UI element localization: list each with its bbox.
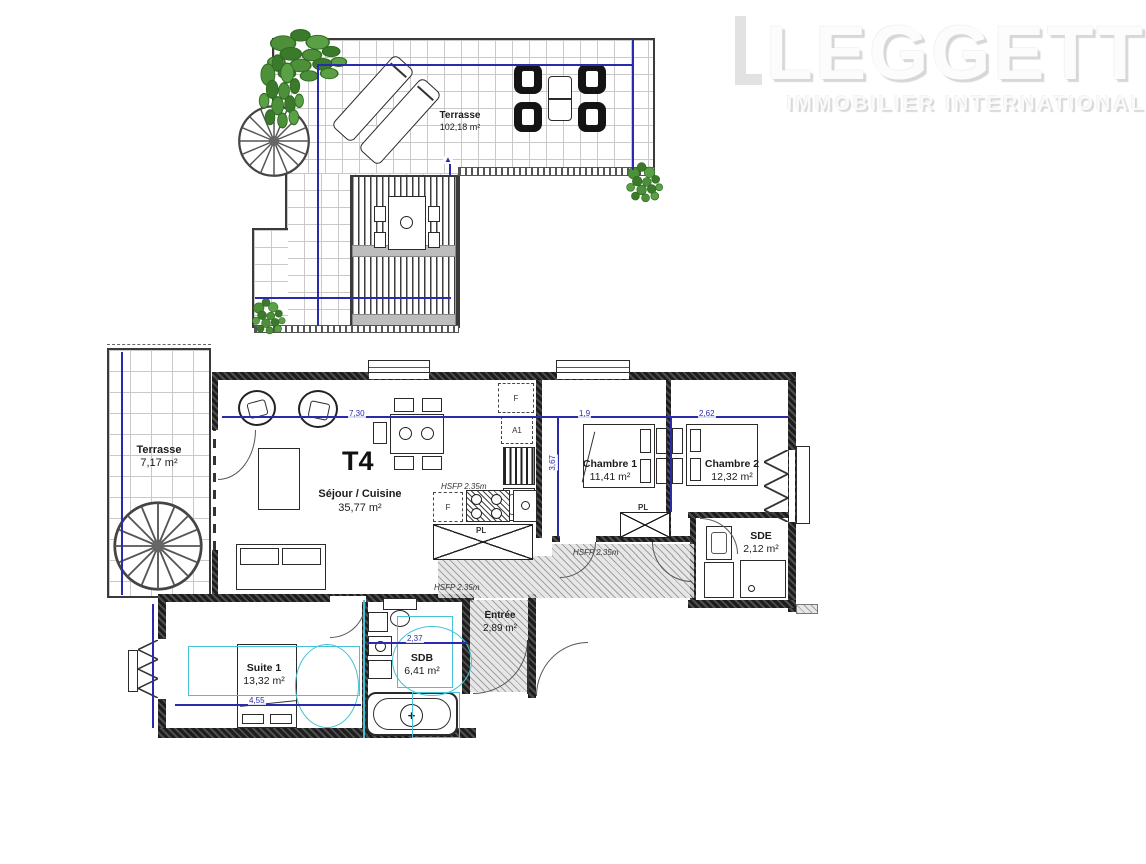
burner: [471, 508, 482, 519]
burner: [491, 494, 502, 505]
dining-chair: [373, 422, 387, 444]
armchair-seat: [307, 400, 330, 421]
dimension-line: [317, 64, 319, 326]
dimension-text: 2,62: [698, 410, 716, 418]
fridge-label: F: [514, 394, 519, 403]
window-gap: [789, 450, 795, 522]
cyan-overlay-line: [363, 600, 365, 738]
roof-terrace-area: 102,18 m²: [425, 122, 495, 132]
cyan-overlay-circle: [392, 626, 472, 696]
plate: [399, 427, 412, 440]
window: [368, 360, 430, 373]
wall-stub: [796, 604, 818, 614]
roof-chair: [514, 64, 542, 94]
deck-chair: [374, 206, 386, 222]
ceiling-height-note: HSFP 2.35m: [434, 583, 480, 592]
coffee-table: [258, 448, 300, 510]
spiral-staircase-icon: [112, 500, 204, 592]
door-arc: [330, 602, 366, 638]
dimension-line: [255, 297, 451, 299]
plate: [421, 427, 434, 440]
deck-chair: [428, 232, 440, 248]
dimension-line: [317, 64, 632, 66]
vanity: [368, 660, 392, 679]
shower-drain: [748, 585, 755, 592]
sofa-cushion: [240, 548, 279, 565]
wall: [688, 600, 796, 608]
dimension-line: [152, 604, 154, 728]
dimension-line: [175, 704, 361, 706]
plant-icon: [624, 160, 668, 204]
door-arc: [700, 518, 738, 554]
shutter-zigzag-icon: [138, 640, 158, 698]
terrace-area: 7,17 m²: [122, 457, 196, 470]
dimension-line: [121, 352, 123, 595]
dimension-text: 2,37: [406, 635, 424, 643]
roof-chair: [514, 102, 542, 132]
sde-label: SDE: [734, 530, 788, 542]
logo-wordmark: LEGGETT: [735, 16, 1146, 87]
burner: [491, 508, 502, 519]
dimension-line: [632, 40, 634, 170]
terrace-label: Terrasse: [122, 444, 196, 457]
dimension-text: 7,30: [348, 410, 366, 418]
window-gap: [158, 638, 166, 700]
logo-l-mark-icon: [735, 16, 762, 85]
wall: [212, 550, 218, 598]
roof-chair: [578, 64, 606, 94]
dining-chair: [422, 456, 442, 470]
nightstand: [672, 428, 683, 454]
chambre1-area: 11,41 m²: [570, 471, 650, 483]
pillow: [640, 429, 651, 453]
dimension-text: 3,67: [548, 455, 558, 471]
sde-unit: [704, 562, 734, 598]
ceiling-height-note: HSFP 2.35m: [441, 482, 487, 491]
closet-box: [620, 512, 670, 538]
shutter-panel: [128, 650, 138, 692]
logo-subtitle: IMMOBILIER INTERNATIONAL: [735, 93, 1146, 116]
dining-chair: [394, 456, 414, 470]
sliding-door: [213, 430, 216, 550]
dining-chair: [422, 398, 442, 412]
closet-label: PL: [638, 503, 648, 512]
fridge-box: F: [498, 383, 534, 413]
roof-table: [548, 76, 572, 121]
door-arc: [218, 430, 256, 480]
sink-drain: [521, 501, 530, 510]
shutter-panel: [796, 446, 810, 524]
vanity: [368, 636, 392, 656]
dimension-line: [670, 416, 672, 512]
logo-name: LEGGETT: [766, 22, 1146, 87]
sofa: [236, 544, 326, 590]
window-gap: [369, 373, 429, 379]
deck-chair: [428, 206, 440, 222]
deck-plate: [400, 216, 413, 229]
dimension-text: 1,9: [578, 410, 591, 418]
pillow: [690, 429, 701, 452]
plant-icon: [256, 50, 310, 132]
entree-area: 2,89 m²: [470, 623, 530, 635]
fridge-box: F: [433, 492, 463, 522]
lounger-backrest: [417, 85, 434, 101]
plant-icon: [248, 296, 292, 336]
chambre2-label: Chambre 2: [690, 458, 774, 470]
fridge-label: F: [446, 503, 451, 512]
dishwasher: [503, 447, 535, 485]
window: [556, 360, 630, 373]
door-arc: [536, 642, 588, 696]
dining-table: [390, 414, 444, 454]
armchair: [238, 390, 276, 426]
dimension-text: 4,55: [248, 697, 266, 705]
appliance-label: A1: [512, 426, 522, 435]
wall: [212, 372, 796, 380]
roof-chair: [578, 102, 606, 132]
wall: [212, 380, 218, 430]
nightstand: [672, 458, 683, 484]
sejour-area: 35,77 m²: [300, 502, 420, 515]
chambre2-area: 12,32 m²: [690, 471, 774, 483]
pillow: [270, 714, 292, 724]
nightstand: [656, 458, 667, 484]
window-pane: [557, 367, 629, 368]
apartment-type-label: T4: [342, 446, 374, 477]
toilet-tank: [383, 598, 417, 610]
burner: [471, 494, 482, 505]
cyan-overlay-rect: [412, 692, 460, 738]
stove: [466, 490, 510, 522]
sejour-label: Séjour / Cuisine: [300, 488, 420, 501]
deck-chair: [374, 232, 386, 248]
entree-label: Entrée: [470, 610, 530, 622]
chambre1-label: Chambre 1: [570, 458, 650, 470]
armchair: [298, 390, 338, 428]
appliance-box: A1: [501, 416, 533, 444]
sde-area: 2,12 m²: [734, 543, 788, 555]
sdb-unit: [368, 612, 388, 632]
counter-sink: [513, 490, 537, 522]
window-pane: [369, 367, 429, 368]
dining-chair: [394, 398, 414, 412]
wall: [158, 594, 474, 602]
closet-label: PL: [476, 526, 486, 535]
nightstand: [656, 428, 667, 454]
sofa-cushion: [282, 548, 321, 565]
dimension-line: [557, 416, 559, 536]
cyan-overlay-circle: [295, 644, 359, 728]
door-gap: [330, 596, 366, 602]
dimension-line: [449, 164, 451, 176]
door-leaf: [527, 640, 529, 694]
leggett-logo: LEGGETT IMMOBILIER INTERNATIONAL: [735, 16, 1146, 116]
dimension-marker: ▲: [443, 156, 453, 164]
table-split: [549, 98, 571, 100]
shower: [740, 560, 786, 598]
roof-terrace-label: Terrasse: [425, 110, 495, 122]
floorplan-page: Terrasse 102,18 m² ▲ LEGGETT IMMOBILIER …: [0, 0, 1146, 864]
window-gap: [557, 373, 629, 379]
pillow: [242, 714, 264, 724]
